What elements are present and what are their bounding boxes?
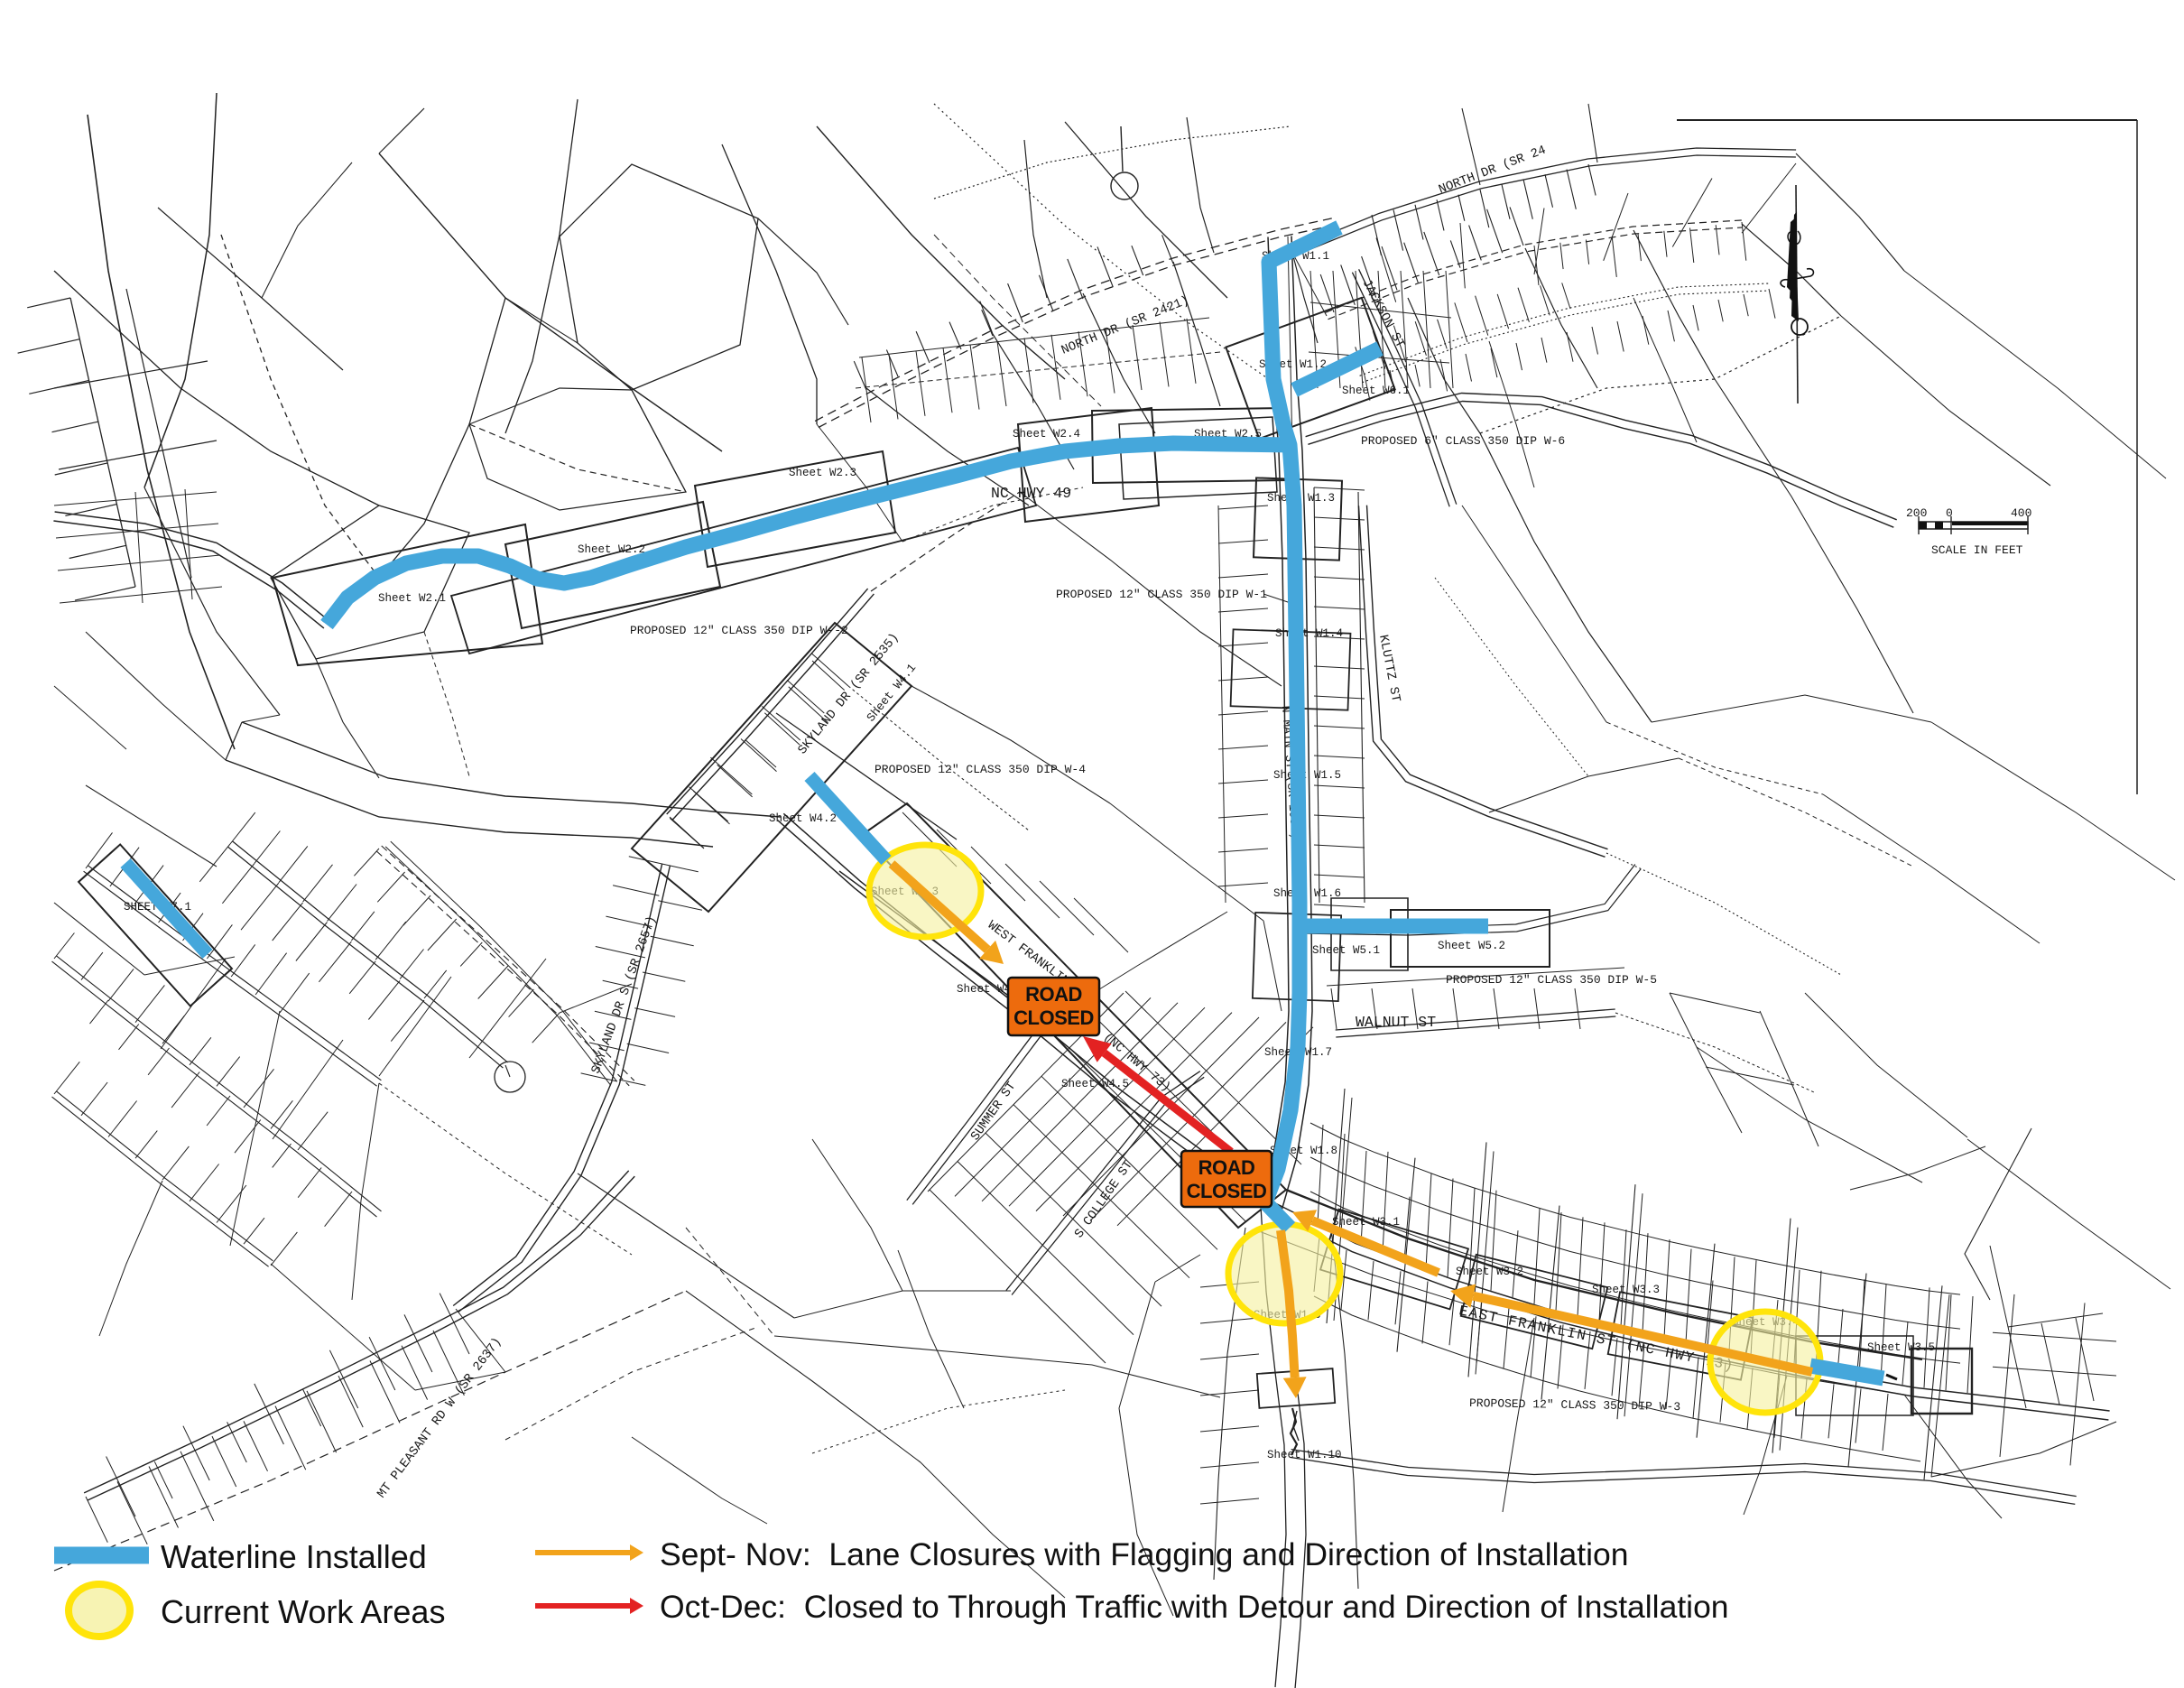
svg-text:Sheet W1.10: Sheet W1.10	[1267, 1449, 1342, 1461]
svg-text:Sheet W2.4: Sheet W2.4	[1013, 428, 1080, 441]
svg-text:Sheet W1.5: Sheet W1.5	[1273, 769, 1341, 782]
svg-text:Sheet W3.3: Sheet W3.3	[1592, 1284, 1660, 1296]
svg-text:NC HWY 49: NC HWY 49	[991, 485, 1071, 502]
svg-text:Waterline Installed: Waterline Installed	[161, 1538, 427, 1575]
svg-text:Sheet W1.4: Sheet W1.4	[1275, 627, 1343, 640]
svg-text:Sheet W2.3: Sheet W2.3	[789, 467, 856, 479]
svg-text:Sheet W5.1: Sheet W5.1	[1312, 944, 1380, 957]
svg-text:Sheet W3.1: Sheet W3.1	[1332, 1216, 1400, 1229]
svg-text:WALNUT ST: WALNUT ST	[1356, 1014, 1436, 1031]
svg-text:Current Work Areas: Current Work Areas	[161, 1593, 445, 1630]
svg-text:400: 400	[2011, 506, 2031, 520]
svg-text:Sheet W3.2: Sheet W3.2	[1456, 1266, 1523, 1278]
svg-text:Sheet W4.5: Sheet W4.5	[1061, 1078, 1129, 1090]
svg-text:Sheet W2.1: Sheet W2.1	[378, 592, 446, 605]
svg-text:PROPOSED 12" CLASS 350 DIP W-1: PROPOSED 12" CLASS 350 DIP W-1	[1056, 588, 1267, 601]
svg-text:PROPOSED 12" CLASS 350 DIP W--: PROPOSED 12" CLASS 350 DIP W--2	[630, 624, 848, 637]
svg-text:PROPOSED 12" CLASS 350 DIP W-4: PROPOSED 12" CLASS 350 DIP W-4	[875, 763, 1086, 776]
svg-text:Oct-Dec: Closed to Through Tr: Oct-Dec: Closed to Through Traffic with …	[660, 1589, 1729, 1625]
svg-text:ROAD: ROAD	[1198, 1156, 1255, 1179]
svg-text:PROPOSED 12" CLASS 350 DIP W-5: PROPOSED 12" CLASS 350 DIP W-5	[1446, 973, 1657, 987]
svg-text:SCALE IN FEET: SCALE IN FEET	[1931, 543, 2023, 557]
svg-text:Sept- Nov: Lane Closures with: Sept- Nov: Lane Closures with Flagging a…	[660, 1536, 1628, 1572]
svg-text:Sheet W4.2: Sheet W4.2	[769, 812, 837, 825]
svg-text:Sheet W5.2: Sheet W5.2	[1438, 940, 1505, 952]
svg-text:PROPOSED 6" CLASS 350 DIP W-6: PROPOSED 6" CLASS 350 DIP W-6	[1361, 434, 1565, 448]
svg-text:CLOSED: CLOSED	[1013, 1006, 1094, 1029]
svg-text:Sheet W6.1: Sheet W6.1	[1342, 385, 1410, 397]
svg-text:Sheet W2.2: Sheet W2.2	[578, 543, 645, 556]
svg-text:ROAD: ROAD	[1025, 983, 1082, 1006]
svg-text:200: 200	[1906, 506, 1927, 520]
svg-text:Sheet W1.6: Sheet W1.6	[1273, 887, 1341, 900]
svg-text:Sheet W3.5: Sheet W3.5	[1867, 1341, 1935, 1354]
svg-text:CLOSED: CLOSED	[1187, 1180, 1267, 1202]
